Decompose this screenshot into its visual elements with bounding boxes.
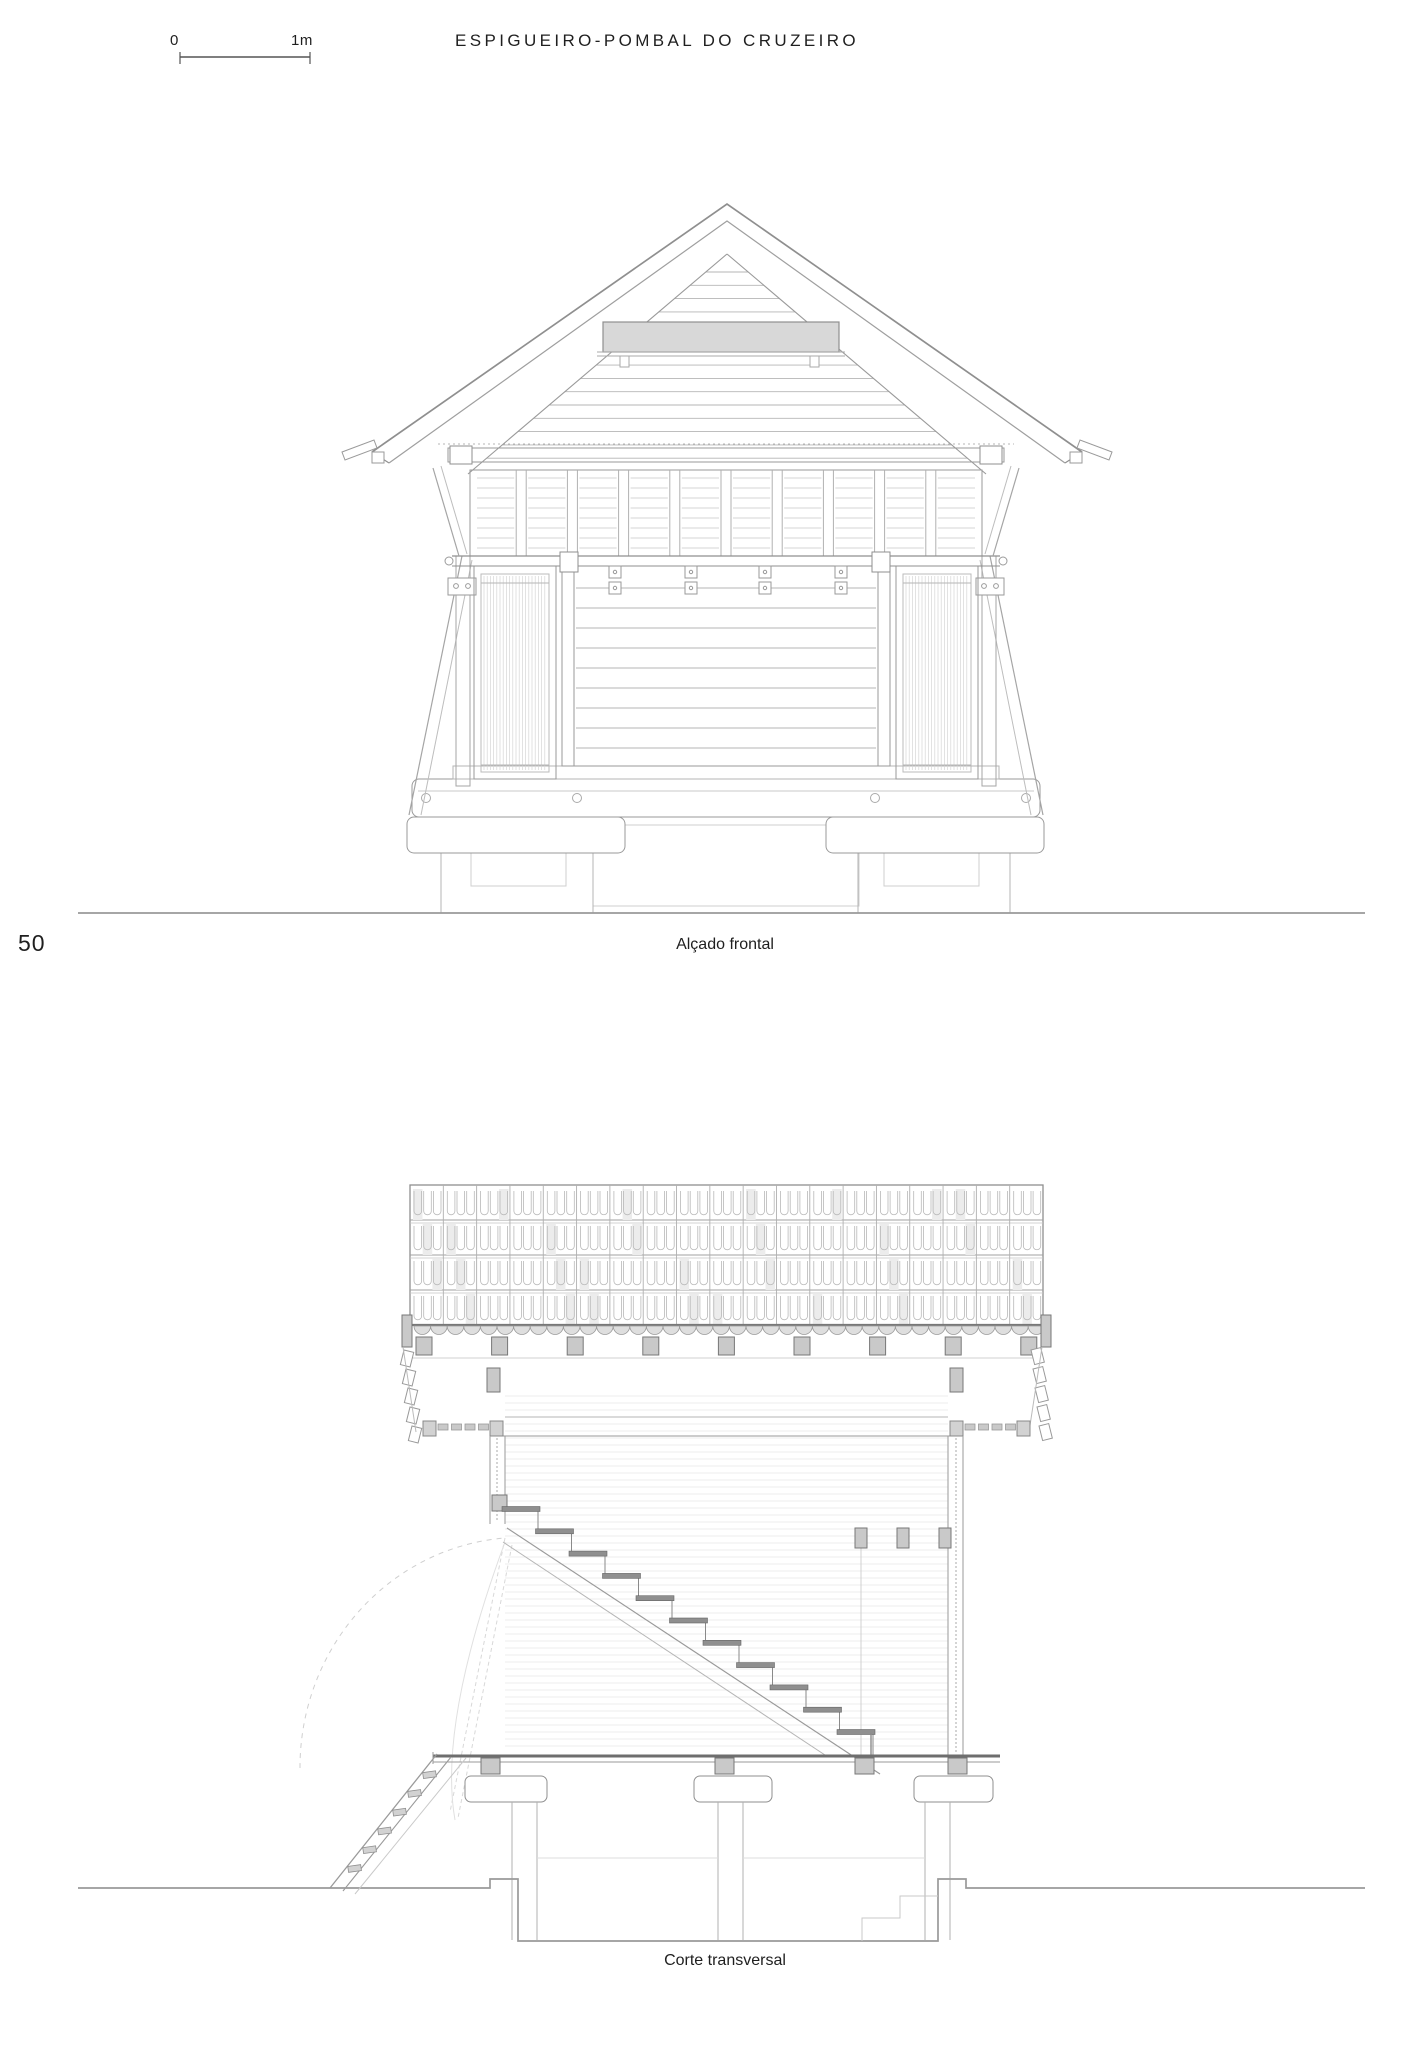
book-page: 0 1m ESPIGUEIRO-POMBAL DO CRUZEIRO 50 Al… xyxy=(0,0,1425,2048)
cross-section-drawing xyxy=(78,1185,1365,1941)
scale-bar xyxy=(180,52,310,64)
page-number: 50 xyxy=(18,930,46,957)
front-elevation-drawing xyxy=(78,204,1365,913)
scale-start-label: 0 xyxy=(170,32,179,49)
page-title: ESPIGUEIRO-POMBAL DO CRUZEIRO xyxy=(455,31,859,51)
figure-caption-front-elevation: Alçado frontal xyxy=(575,936,875,954)
drawing-canvas xyxy=(0,0,1425,2048)
scale-end-label: 1m xyxy=(291,32,313,49)
figure-caption-cross-section: Corte transversal xyxy=(575,1952,875,1970)
